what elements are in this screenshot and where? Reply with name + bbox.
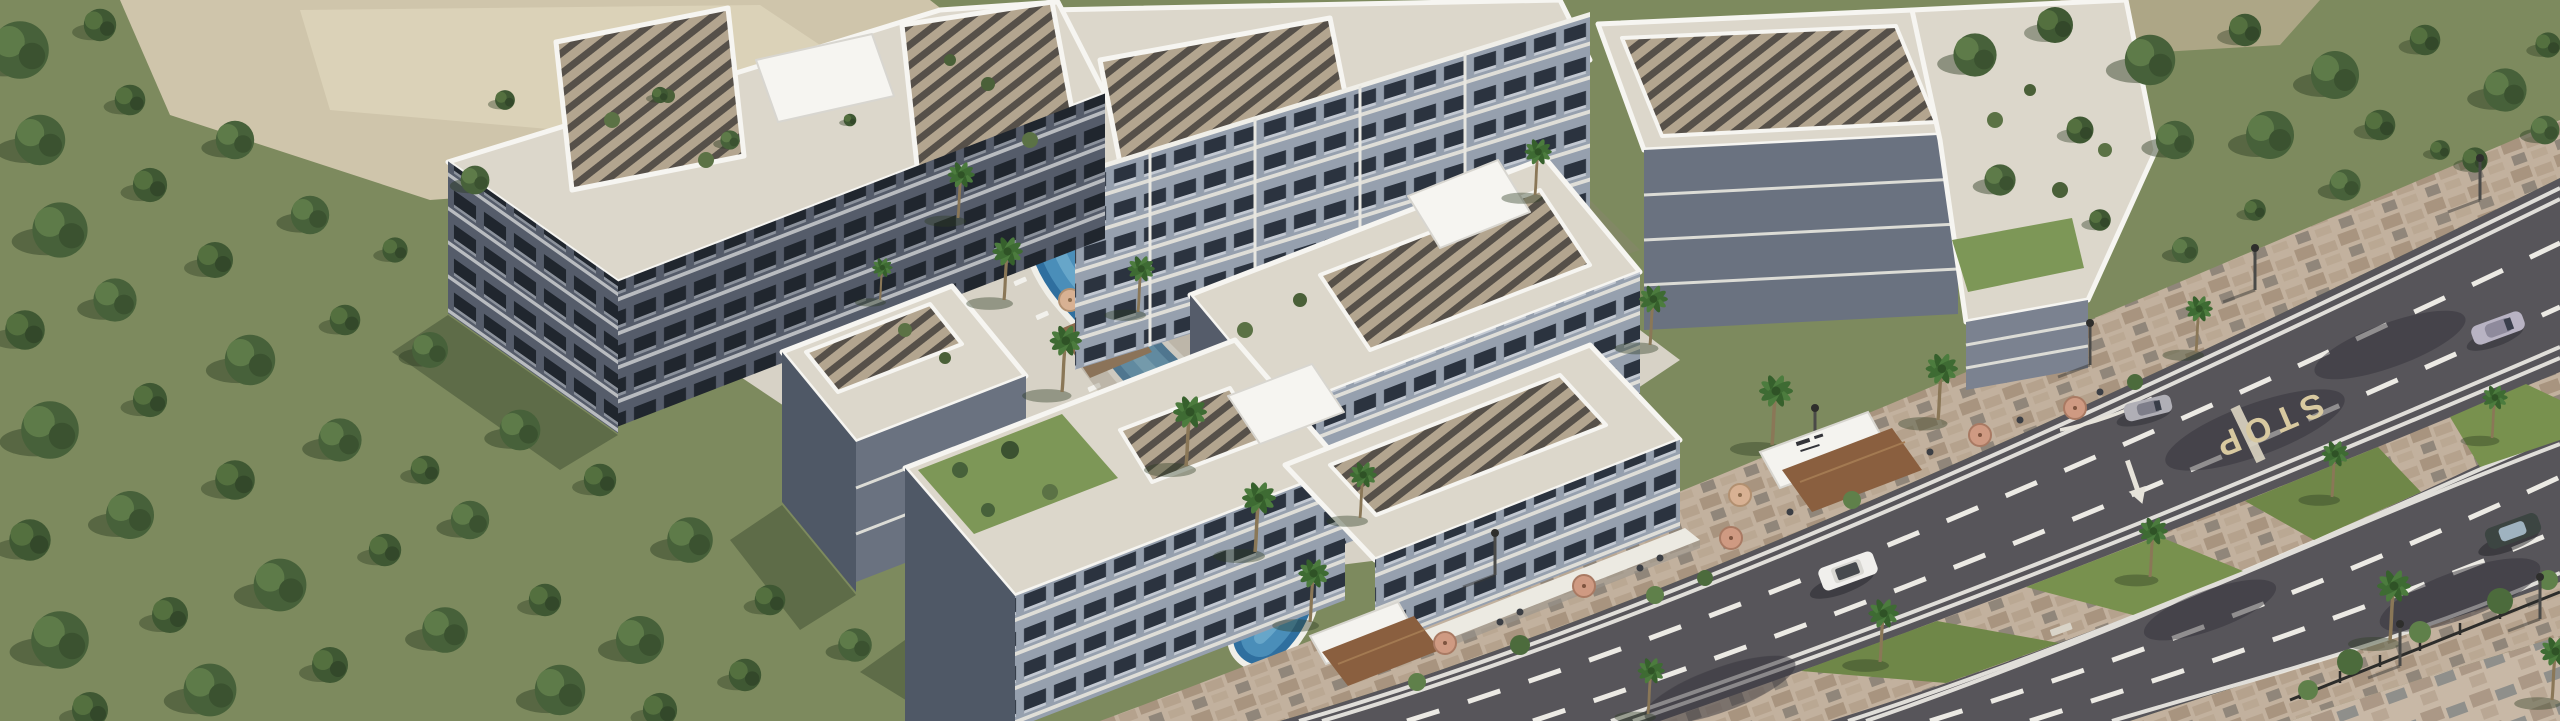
aerial-render: STOP <box>0 0 2560 721</box>
cafe-umbrella <box>1434 632 1456 654</box>
cafe-umbrella <box>1573 575 1595 597</box>
cafe-umbrella <box>1969 424 1991 446</box>
cafe-umbrella <box>1720 527 1742 549</box>
cafe-umbrella <box>2064 397 2086 419</box>
aerial-render-stage: STOP <box>0 0 2560 721</box>
building-east-pergola <box>1598 10 1958 330</box>
cafe-umbrella <box>1729 484 1751 506</box>
pergola-roof-east <box>1622 26 1936 136</box>
